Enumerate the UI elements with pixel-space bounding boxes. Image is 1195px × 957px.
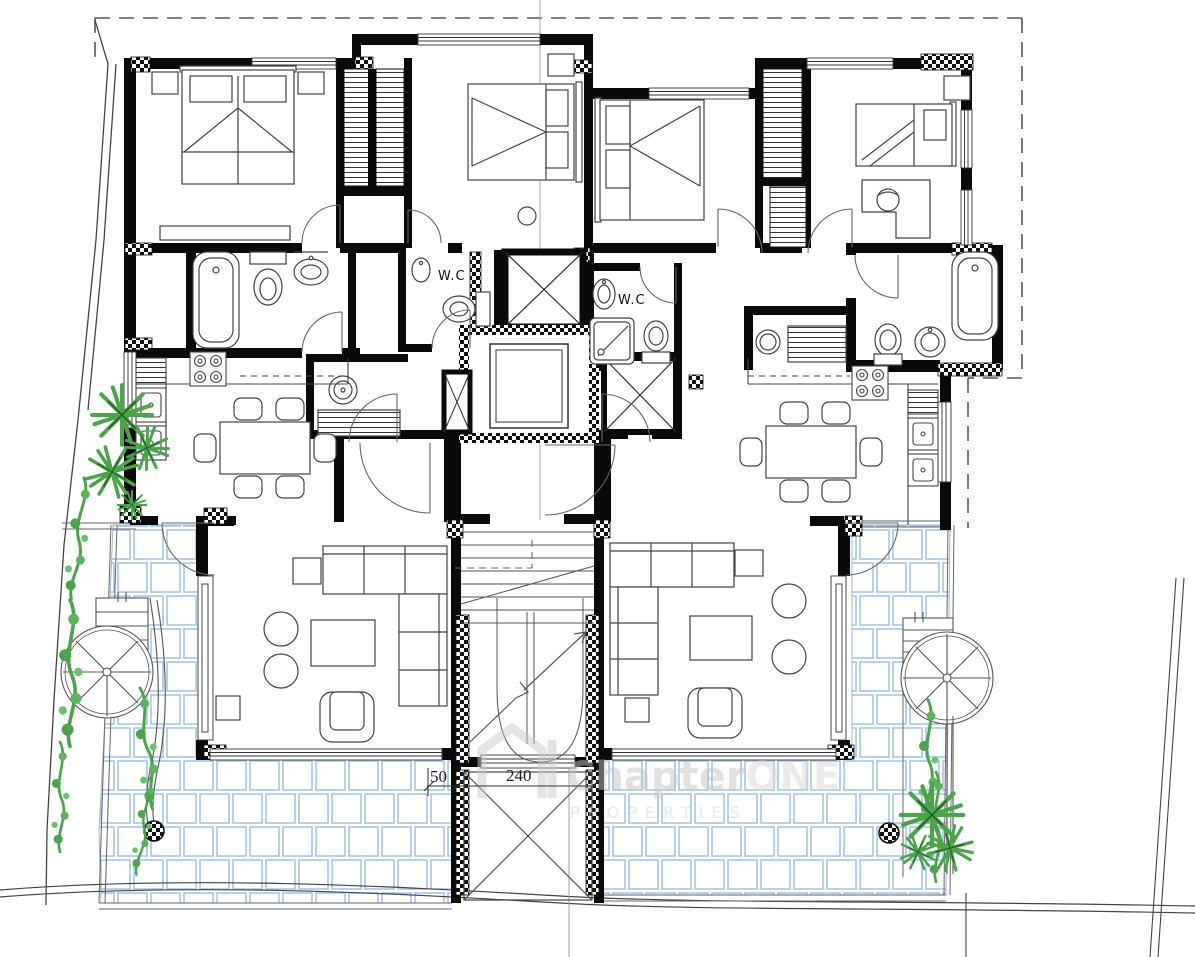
drain-right [879, 823, 899, 843]
dimension-label-large: 240 [506, 766, 532, 785]
elevator-cab [464, 330, 594, 438]
bedroom-3-bed [595, 98, 704, 222]
drain-left [144, 821, 164, 841]
watermark-subtitle: PROPERTIES [570, 803, 748, 822]
floor-plan-canvas: ChapterONE PROPERTIES 50 240 W.C W.C [0, 0, 1195, 957]
light-shaft-left [344, 69, 404, 186]
dimension-label-small: 50 [430, 767, 447, 786]
watermark-brand: ChapterONE [566, 754, 840, 800]
duct-column-left [444, 372, 470, 432]
floor-plan-drawing: ChapterONE PROPERTIES 50 240 W.C W.C [0, 0, 1195, 957]
wc-right-label: W.C [618, 293, 646, 308]
wc-left-label: W.C [438, 269, 466, 284]
duct-shaft-right [604, 358, 676, 432]
elevator-shaft [505, 252, 583, 327]
